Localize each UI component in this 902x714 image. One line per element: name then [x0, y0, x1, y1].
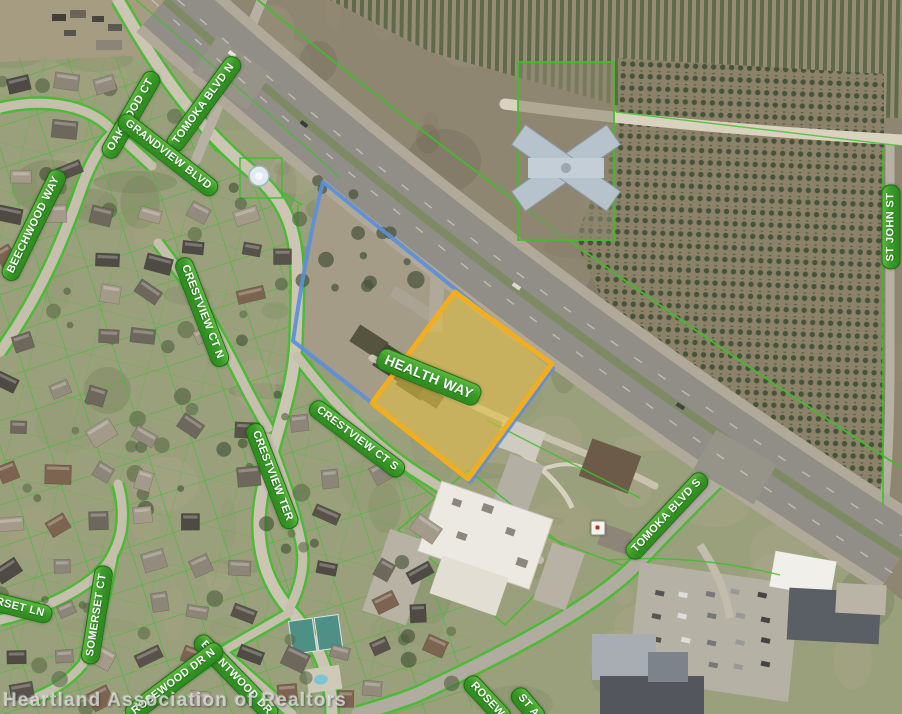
watermark: Heartland Association of Realtors [3, 690, 347, 712]
aerial-map-canvas[interactable]: OAKWOOD CTTOMOKA BLVD NGRANDVIEW BLVDBEE… [0, 0, 902, 714]
street-label-st-john-st: ST JOHN ST [881, 185, 900, 270]
map-marker-icon [591, 521, 606, 536]
star-building [512, 62, 621, 240]
